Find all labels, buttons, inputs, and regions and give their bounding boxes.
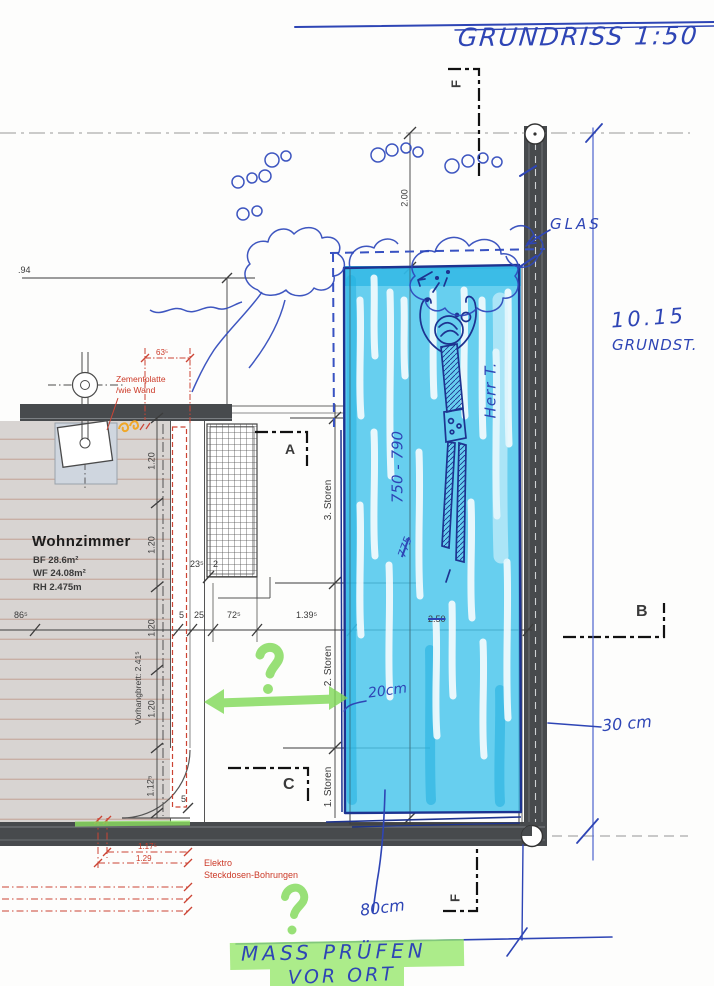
- plan-linework: [0, 0, 714, 986]
- offset-30cm-note: 30 cm: [601, 714, 652, 734]
- dim-120-1: 1.20: [148, 452, 157, 470]
- zementplatte-note-2: /wie Wand: [116, 386, 155, 395]
- dim-1125: 1.12⁵: [147, 775, 156, 796]
- dim-2: 2: [213, 560, 218, 569]
- dim-5-door: 5: [181, 795, 186, 804]
- dim-120-2: 1.20: [148, 536, 157, 554]
- section-letter-a: A: [285, 442, 295, 456]
- herr-t-note: Herr T.: [484, 362, 499, 419]
- dim-725: 72⁵: [227, 611, 241, 620]
- dim-635-red: 63⁵: [156, 349, 168, 357]
- section-letter-b: B: [636, 604, 648, 620]
- room-name: Wohnzimmer: [32, 534, 131, 549]
- title-grundriss: GRUNDRISS 1:50: [457, 23, 700, 50]
- scanned-floorplan-sheet: GRUNDRISS 1:50 GLAS 10.15 GRUNDST. Herr …: [0, 0, 714, 986]
- dim-235: 23⁵: [190, 560, 204, 569]
- section-letter-f-top: F: [450, 80, 463, 88]
- dim-200: 2.00: [401, 189, 410, 207]
- dim-120-3: 1.20: [148, 619, 157, 637]
- section-letter-c: C: [283, 777, 295, 793]
- dim-1175-red: 1.17⁵: [138, 843, 157, 851]
- storen-3-label: 3. Storen: [324, 480, 334, 521]
- pool-range-note: 750 - 790: [391, 431, 406, 503]
- elektro-note-2: Steckdosen-Bohrungen: [204, 871, 298, 880]
- chimney-axis-symbol: [48, 373, 124, 398]
- storen-1-label: 1. Storen: [324, 767, 334, 808]
- plot-dimension: 10.15: [610, 305, 686, 331]
- dim-1395: 1.39⁵: [296, 611, 317, 620]
- dim-vorhangbrett: Vorhangbrett: 2.41⁵: [134, 651, 143, 724]
- room-height-rh: RH 2.475m: [33, 583, 82, 593]
- dim-129-red: 1.29: [136, 855, 152, 863]
- zementplatte-note-1: Zementplatte: [116, 375, 166, 384]
- pool-water-marker: [345, 266, 521, 812]
- dim-120-4: 1.20: [148, 700, 157, 718]
- dim-5: 5: [179, 611, 184, 620]
- room-area-bf: BF 28.6m²: [33, 556, 78, 566]
- dim-25: 25: [194, 611, 204, 620]
- check-note-line1: MASS PRÜFEN: [241, 940, 427, 963]
- room-area-wf: WF 24.08m²: [33, 569, 86, 579]
- section-letter-f-bottom: F: [449, 894, 462, 902]
- dim-94: .94: [18, 266, 31, 275]
- check-note-line2: VOR ORT: [288, 965, 397, 986]
- dim-250-struck: 2.50: [428, 615, 446, 624]
- plot-label: GRUNDST.: [612, 338, 697, 353]
- floor-grate: [207, 424, 270, 598]
- elektro-note-1: Elektro: [204, 859, 232, 868]
- glas-note: GLAS: [550, 217, 602, 232]
- dim-865: 86⁵: [14, 611, 28, 620]
- storen-2-label: 2. Storen: [324, 646, 334, 687]
